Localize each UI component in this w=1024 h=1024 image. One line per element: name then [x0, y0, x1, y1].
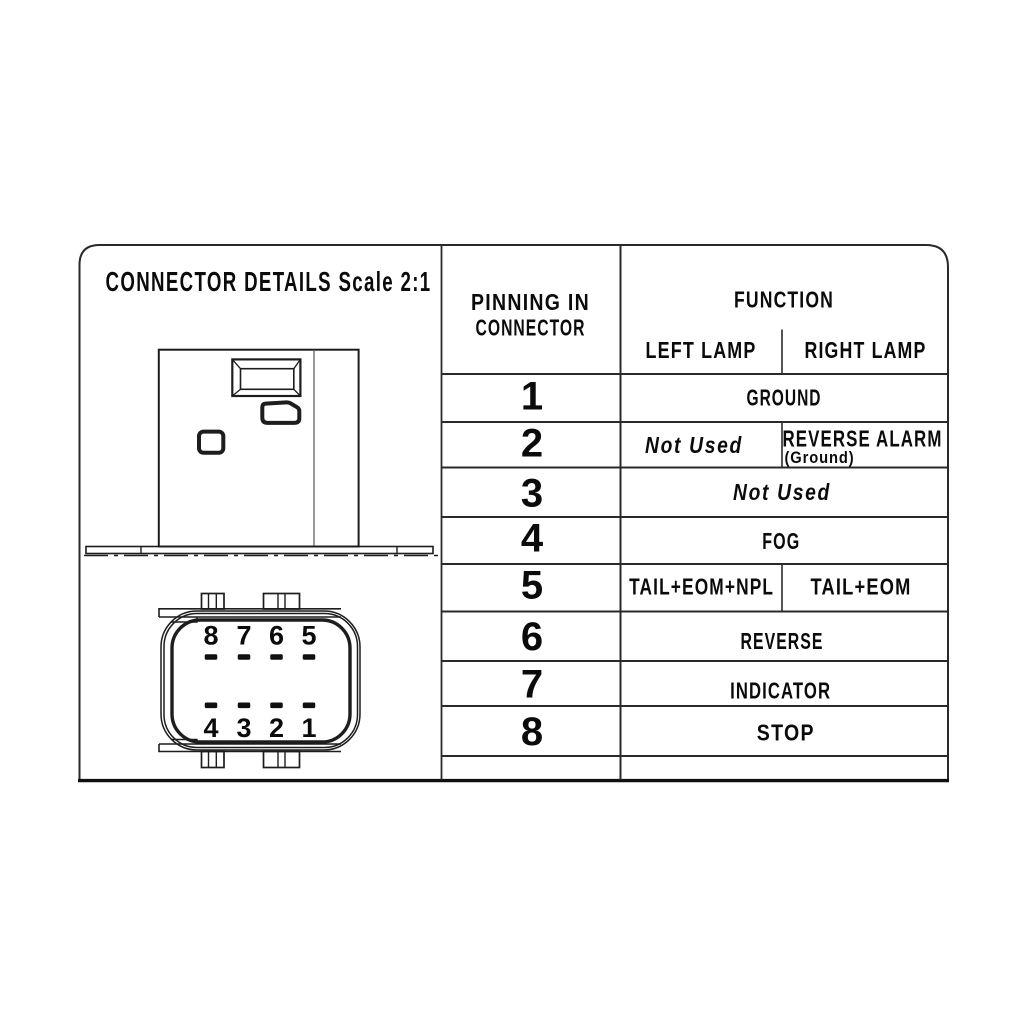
svg-text:PINNING IN: PINNING IN — [471, 289, 590, 315]
svg-text:CONNECTOR: CONNECTOR — [476, 315, 586, 341]
svg-text:5: 5 — [301, 621, 316, 651]
svg-text:FUNCTION: FUNCTION — [734, 286, 834, 312]
svg-text:2: 2 — [521, 422, 543, 466]
svg-text:LEFT LAMP: LEFT LAMP — [646, 337, 757, 363]
svg-text:3: 3 — [521, 471, 543, 515]
svg-text:6: 6 — [521, 615, 543, 659]
svg-text:STOP: STOP — [757, 719, 815, 745]
svg-text:3: 3 — [236, 713, 251, 743]
svg-text:(Ground): (Ground) — [785, 448, 855, 467]
svg-text:TAIL+EOM: TAIL+EOM — [811, 573, 912, 599]
svg-text:Not Used: Not Used — [733, 479, 831, 505]
svg-text:1: 1 — [301, 713, 316, 743]
svg-text:8: 8 — [203, 621, 218, 651]
svg-text:INDICATOR: INDICATOR — [730, 677, 831, 703]
svg-text:FOG: FOG — [762, 528, 800, 554]
svg-text:REVERSE: REVERSE — [741, 628, 824, 654]
svg-text:TAIL+EOM+NPL: TAIL+EOM+NPL — [629, 573, 774, 599]
svg-text:2: 2 — [269, 713, 284, 743]
svg-text:5: 5 — [521, 564, 543, 608]
svg-text:GROUND: GROUND — [747, 385, 822, 411]
svg-text:7: 7 — [521, 663, 543, 707]
svg-text:7: 7 — [236, 621, 251, 651]
svg-text:4: 4 — [521, 517, 544, 561]
svg-text:1: 1 — [521, 375, 543, 419]
svg-text:8: 8 — [521, 710, 543, 754]
svg-text:Not Used: Not Used — [645, 432, 743, 458]
svg-text:6: 6 — [269, 621, 284, 651]
svg-text:RIGHT LAMP: RIGHT LAMP — [805, 337, 927, 363]
svg-text:4: 4 — [203, 713, 218, 743]
svg-text:CONNECTOR DETAILS Scale 2:1: CONNECTOR DETAILS Scale 2:1 — [106, 266, 432, 297]
